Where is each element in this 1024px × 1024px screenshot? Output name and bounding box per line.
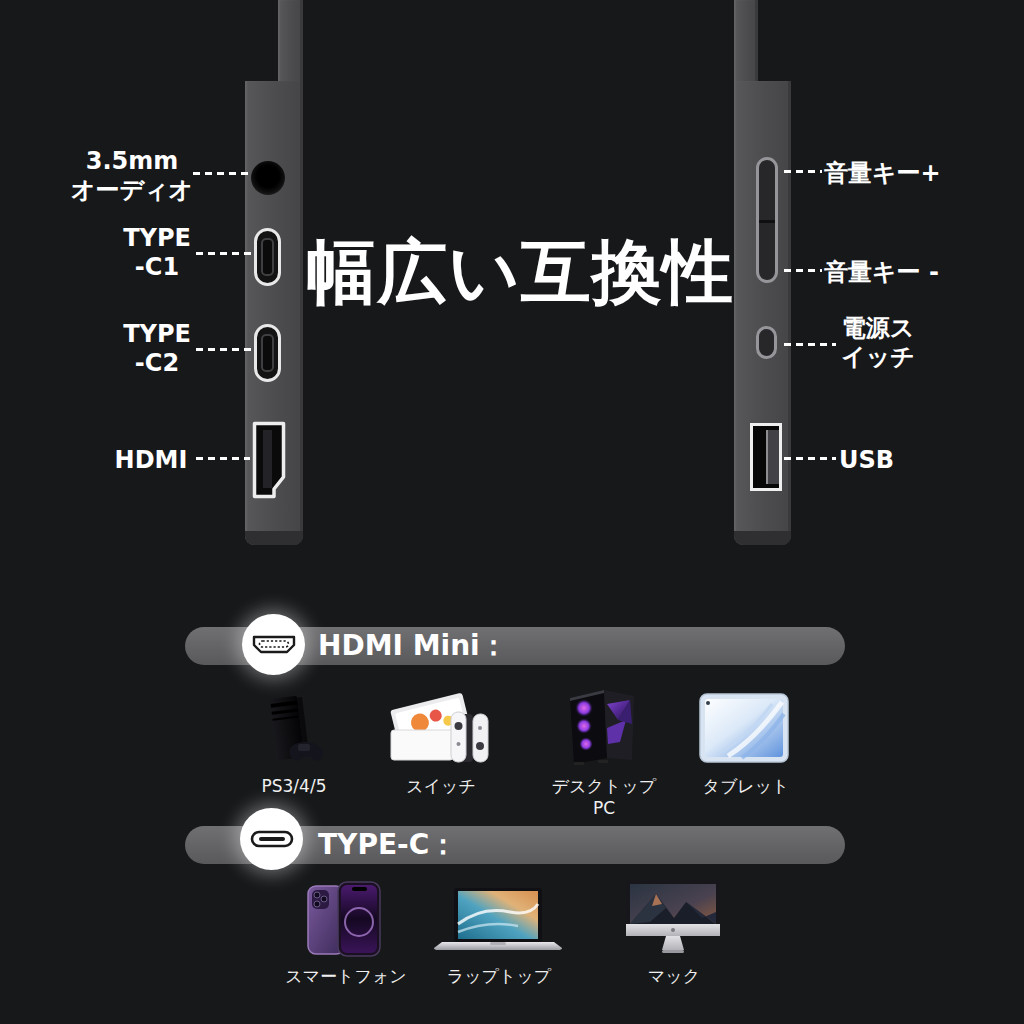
- callout-line-volume-up: [784, 170, 822, 173]
- volume-rocker-divider: [759, 220, 775, 223]
- device-label-desktop-pc: デスクトップPC: [543, 775, 665, 819]
- left-monitor-edge-bottom-cap: [245, 531, 303, 545]
- playstation-console-image: [246, 690, 346, 770]
- device-label-ps345: PS3/4/5: [233, 775, 355, 797]
- device-label-smartphone: スマートフォン: [285, 965, 407, 987]
- type-c2-port: [254, 324, 281, 382]
- audio-jack-label: 3.5mm オーディオ: [57, 147, 207, 206]
- usb-label: USB: [839, 446, 894, 475]
- callout-line-power: [784, 343, 836, 346]
- device-label-laptop: ラップトップ: [438, 965, 560, 987]
- type-c-heading: TYPE-C：: [318, 826, 457, 864]
- product-infographic: 3.5mm オーディオ TYPE -C1 TYPE -C2 HDMI 音量キー+…: [0, 0, 1024, 1024]
- volume-up-label: 音量キー+: [824, 159, 941, 188]
- device-label-mac: マック: [613, 965, 735, 987]
- hdmi-mini-badge: [242, 614, 305, 675]
- usb-port-tongue: [766, 430, 779, 484]
- laptop-image: [432, 886, 564, 954]
- power-switch-button: [756, 326, 777, 359]
- callout-line-usb: [784, 457, 836, 460]
- audio-jack-port: [251, 161, 285, 195]
- device-label-switch: スイッチ: [380, 775, 502, 797]
- hdmi-port: [251, 420, 287, 500]
- type-c-badge: [240, 808, 303, 870]
- type-c-connector-icon: [249, 828, 295, 850]
- type-c2-port-slot: [261, 334, 274, 372]
- hdmi-mini-heading: HDMI Mini：: [318, 627, 508, 665]
- type-c2-label: TYPE -C2: [82, 320, 232, 379]
- nintendo-switch-image: [381, 688, 503, 768]
- right-monitor-edge-bottom-cap: [734, 531, 791, 545]
- usb-port: [750, 423, 782, 491]
- smartphone-image: [304, 878, 384, 960]
- page-title: 幅広い互換性: [16, 230, 1024, 314]
- left-monitor-edge-top: [278, 0, 303, 84]
- hdmi-connector-icon: [251, 633, 297, 657]
- right-monitor-edge-top: [734, 0, 758, 84]
- tablet-image: [698, 692, 790, 764]
- power-switch-label: 電源ス イッチ: [836, 314, 920, 373]
- device-label-tablet: タブレット: [685, 775, 807, 797]
- hdmi-label: HDMI: [76, 446, 226, 475]
- imac-image: [622, 878, 724, 958]
- desktop-pc-tower-image: [560, 684, 648, 768]
